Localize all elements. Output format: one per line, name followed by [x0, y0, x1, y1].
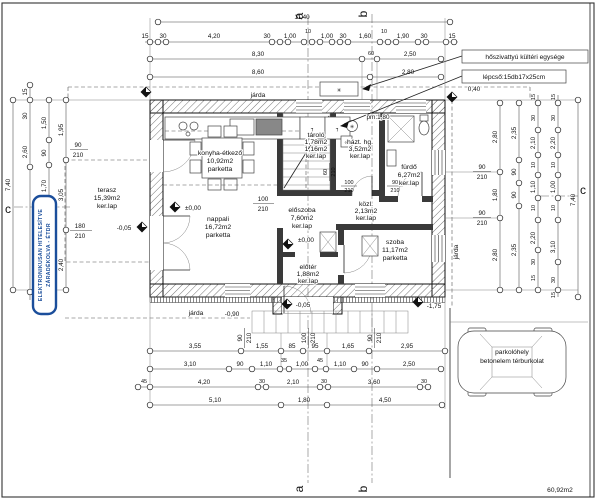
svg-text:90: 90: [478, 164, 486, 171]
svg-text:parketta: parketta: [206, 232, 231, 239]
svg-text:tároló: tároló: [307, 132, 324, 139]
dim: 30: [421, 379, 427, 385]
stamp-line-1: ELEKTRONIKUSAN HITELESÍTVE: [36, 209, 44, 302]
svg-text:6,27m2: 6,27m2: [398, 172, 421, 179]
dim: 10: [531, 162, 537, 168]
svg-text:3,52m2: 3,52m2: [349, 146, 372, 153]
svg-text:90: 90: [478, 210, 486, 217]
svg-text:16,72m2: 16,72m2: [205, 224, 232, 231]
dim: 4,20: [198, 379, 211, 386]
dim: 1,95: [58, 123, 65, 136]
dim: 2,95: [401, 343, 414, 350]
dim: 1,10: [260, 361, 273, 368]
dim: 2,10: [287, 379, 300, 386]
dim: 1,10: [530, 180, 537, 193]
dim: 4,20: [208, 33, 221, 40]
svg-text:szoba: szoba: [386, 239, 404, 246]
svg-text:közl.: közl.: [359, 201, 373, 208]
svg-text:90: 90: [392, 180, 398, 186]
dim: 1,80: [298, 397, 311, 404]
heat-pump-callout: hőszivattyú kültéri egysége: [485, 54, 564, 61]
dim: 30: [420, 33, 428, 40]
dim: 1,00: [296, 361, 309, 368]
dim: 4,50: [379, 397, 392, 404]
dim: 30: [263, 33, 271, 40]
dim: 1,80: [492, 188, 499, 201]
dim: 10: [305, 29, 311, 35]
dim: 2,20: [530, 231, 537, 244]
opening-size: 90 210: [367, 328, 383, 348]
room-label-kozl: közl. 2,13m2 ker.lap: [355, 201, 378, 222]
dim: 15: [531, 275, 537, 281]
dim: 45: [141, 379, 147, 385]
level-zero-eloter: ±0,00: [298, 237, 314, 244]
room-label-szoba: szoba 11,17m2 parketta: [382, 239, 408, 262]
dim: 1,70: [41, 179, 48, 192]
dim: 30: [321, 379, 327, 385]
svg-text:210: 210: [75, 233, 86, 240]
room-label-eloszoba: előszoba 7,60m2 ker.lap: [288, 207, 315, 230]
svg-text:előszoba: előszoba: [288, 207, 315, 214]
dim: 3,55: [189, 343, 202, 350]
dim: 90: [41, 149, 48, 157]
dim: 1,00: [321, 33, 334, 40]
parking-label-2: betonelem térburkolat: [480, 358, 544, 365]
svg-text:konyha-étkező: konyha-étkező: [198, 150, 242, 157]
etdr-stamp: ELEKTRONIKUSAN HITELESÍTVE ZÁRADÉKOLVA -…: [33, 196, 56, 314]
stair-spec-callout: lépcső:15db17x25cm: [483, 74, 546, 81]
room-label-nappali: nappali 16,72m2 parketta: [205, 216, 232, 239]
room-label-eloter: előtér 1,88m2 ker.lap: [297, 264, 320, 285]
dim: 2,50: [404, 51, 417, 58]
level-minus90-sidewalk: -0,90: [225, 311, 240, 318]
svg-text:90: 90: [74, 142, 82, 149]
dim: 2,35: [511, 126, 518, 139]
opening-size: 90 210: [473, 210, 491, 227]
svg-text:11,17m2: 11,17m2: [382, 247, 408, 254]
dim: 90: [511, 191, 518, 199]
level-minus05-terasz: -0,05: [117, 225, 132, 232]
dim: 90: [236, 361, 244, 368]
svg-text:ker.lap: ker.lap: [356, 215, 376, 222]
opening-size: 90 210: [237, 328, 253, 348]
parapet-height: pm:1,80: [366, 114, 390, 121]
terrace-outline: [65, 160, 150, 262]
dim: 10: [551, 162, 557, 168]
opening-size: 100 210: [253, 196, 274, 213]
dim: 8,30: [252, 51, 265, 58]
section-lines: [14, 14, 578, 483]
dim: 3,10: [550, 240, 557, 253]
dim: 1,10: [334, 361, 347, 368]
dim: 30: [551, 277, 557, 283]
svg-text:15,39m2: 15,39m2: [94, 195, 121, 202]
dim: 15: [551, 292, 557, 298]
sidewalk-label-right: járda: [453, 244, 460, 260]
dim: 30: [531, 259, 537, 265]
dim: 3,60: [368, 379, 381, 386]
svg-text:210: 210: [390, 188, 399, 194]
svg-text:parketta: parketta: [383, 255, 408, 262]
appliance-symbol: ⁊: [336, 127, 339, 133]
svg-text:előtér: előtér: [299, 264, 317, 271]
dim: 30: [339, 33, 347, 40]
svg-text:fürdő: fürdő: [401, 164, 417, 171]
room-label-terasz: terasz 15,39m2 ker.lap: [94, 187, 121, 210]
dim-left-total: 7,40: [5, 178, 12, 191]
dim: 30: [159, 33, 167, 40]
floor-plan-sheet: a b a b c c járda járda járda: [0, 0, 600, 504]
svg-text:1,16m2: 1,16m2: [305, 146, 328, 153]
dim: 5,10: [209, 397, 222, 404]
dim: 1,00: [284, 33, 297, 40]
svg-text:210: 210: [376, 332, 383, 343]
dim: 3,05: [58, 188, 65, 201]
svg-text:210: 210: [331, 167, 337, 176]
svg-text:90: 90: [237, 334, 244, 342]
room-label-hazthg: házt. hg. 3,52m2 ker.lap: [347, 139, 373, 160]
svg-text:7,60m2: 7,60m2: [291, 215, 314, 222]
dim: 1,00: [550, 180, 557, 193]
dim: 60: [368, 51, 374, 57]
svg-text:210: 210: [344, 188, 353, 194]
dim: 1,65: [342, 343, 355, 350]
svg-text:parketta: parketta: [208, 166, 233, 173]
offset-dim: 0,40: [468, 86, 481, 93]
sidewalk-label-top: járda: [250, 92, 266, 99]
room-label-tarolo: tároló 1,78m2 1,16m2 ker.lap: [305, 132, 328, 160]
section-marker-c-right: c: [580, 183, 586, 197]
dim: 2,40: [58, 258, 65, 271]
dim: 90: [511, 168, 518, 176]
dim: 2,80: [402, 69, 415, 76]
svg-text:60: 60: [323, 169, 329, 175]
dim: 10: [551, 205, 557, 211]
dim: 35: [281, 358, 287, 364]
svg-text:210: 210: [477, 174, 488, 181]
section-marker-a-bottom: a: [292, 485, 306, 492]
dim-total-width: 11,40: [294, 14, 310, 21]
dim: 90: [361, 361, 369, 368]
parking-label-1: parkolóhely: [495, 349, 529, 356]
dim: 85: [288, 343, 296, 350]
dim: 8,60: [252, 69, 265, 76]
dim: 2,10: [530, 136, 537, 149]
svg-text:házt. hg.: házt. hg.: [347, 139, 373, 146]
dim: 30: [551, 115, 557, 121]
svg-text:100: 100: [301, 332, 308, 343]
svg-text:ker.lap: ker.lap: [97, 203, 117, 210]
dim: 15: [551, 94, 557, 100]
heat-pump-indoor-symbol: ✳: [350, 124, 355, 131]
dim: 1,50: [41, 116, 48, 129]
dim-right-total: 7,40: [570, 193, 577, 206]
svg-text:ker.lap: ker.lap: [292, 223, 312, 230]
svg-text:ker.lap: ker.lap: [350, 153, 370, 160]
svg-text:nappali: nappali: [207, 216, 229, 223]
dim: 10: [531, 205, 537, 211]
dim: 10: [381, 29, 387, 35]
dim: 30: [531, 115, 537, 121]
section-marker-b-bottom: b: [356, 485, 370, 492]
dim: 15: [22, 88, 29, 96]
svg-text:ker.lap: ker.lap: [298, 278, 318, 285]
svg-text:210: 210: [73, 152, 84, 159]
svg-text:ker.lap: ker.lap: [306, 153, 326, 160]
svg-text:210: 210: [258, 206, 269, 213]
dim: 15: [448, 33, 456, 40]
svg-text:90: 90: [367, 334, 374, 342]
svg-text:210: 210: [310, 332, 317, 343]
bathroom-fixtures: [387, 115, 429, 166]
svg-text:100: 100: [258, 196, 269, 203]
heat-pump-symbol: ✳: [337, 87, 342, 94]
svg-text:1,78m2: 1,78m2: [305, 139, 328, 146]
svg-text:2,13m2: 2,13m2: [355, 208, 378, 215]
total-area-label: 60,92m2: [547, 487, 573, 494]
dim: 2,35: [511, 243, 518, 256]
dim: 1,90: [397, 33, 410, 40]
dim: 2,20: [550, 136, 557, 149]
opening-size: 180 210: [70, 223, 92, 240]
level-minus175-parking: -1,75: [427, 303, 442, 310]
dim: 45: [317, 358, 323, 364]
svg-text:ker.lap: ker.lap: [399, 180, 419, 187]
dim: 2,80: [492, 248, 499, 261]
opening-size: 90 210: [473, 164, 491, 181]
dim: 30: [259, 379, 265, 385]
svg-text:210: 210: [246, 332, 253, 343]
dim: 2,80: [492, 130, 499, 143]
section-marker-b-top: b: [356, 10, 370, 17]
dim: 15: [141, 33, 149, 40]
dim: 1,55: [256, 343, 269, 350]
svg-text:10,92m2: 10,92m2: [207, 158, 234, 165]
dim: 2,50: [403, 361, 416, 368]
svg-text:terasz: terasz: [98, 187, 117, 194]
svg-text:100: 100: [344, 180, 353, 186]
svg-text:180: 180: [75, 223, 86, 230]
opening-size: 90 210: [70, 142, 88, 159]
level-minus05-entry: -0,05: [296, 302, 311, 309]
svg-text:1,88m2: 1,88m2: [297, 271, 320, 278]
stamp-line-2: ZÁRADÉKOLVA - ÉTDR: [44, 223, 52, 287]
section-marker-c-left: c: [5, 202, 11, 216]
dim: 1,60: [359, 33, 372, 40]
sidewalk-label-bottom: járda: [188, 310, 204, 317]
floor-plan-drawing: a b a b c c járda járda járda: [0, 0, 600, 504]
level-zero-nappali: ±0,00: [185, 205, 201, 212]
dim: 3,10: [184, 361, 197, 368]
dim: 2,60: [22, 145, 29, 158]
dim: 30: [22, 112, 29, 120]
svg-text:210: 210: [477, 220, 488, 227]
room-label-furdo: fürdő 6,27m2 ker.lap: [398, 164, 421, 187]
dim: 15: [531, 94, 537, 100]
